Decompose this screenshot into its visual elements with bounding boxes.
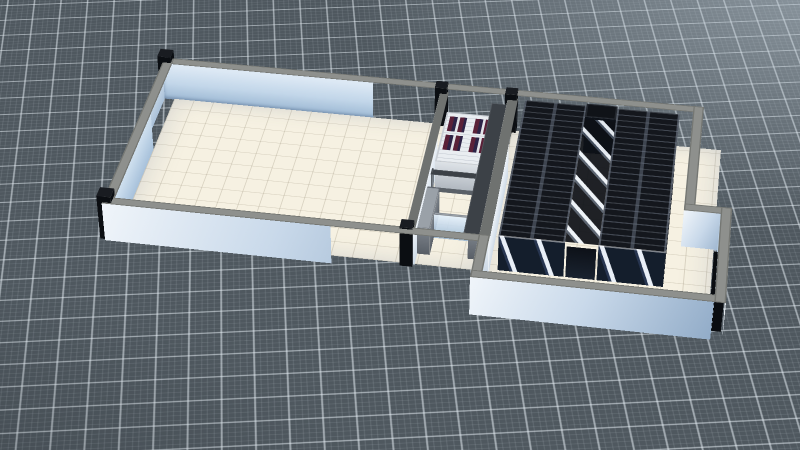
aisle-front-opening-south-face xyxy=(565,246,596,280)
aisle-end-door-top-face xyxy=(585,104,618,120)
aisle-front-opening xyxy=(565,259,597,281)
3d-viewport[interactable] xyxy=(0,0,800,450)
